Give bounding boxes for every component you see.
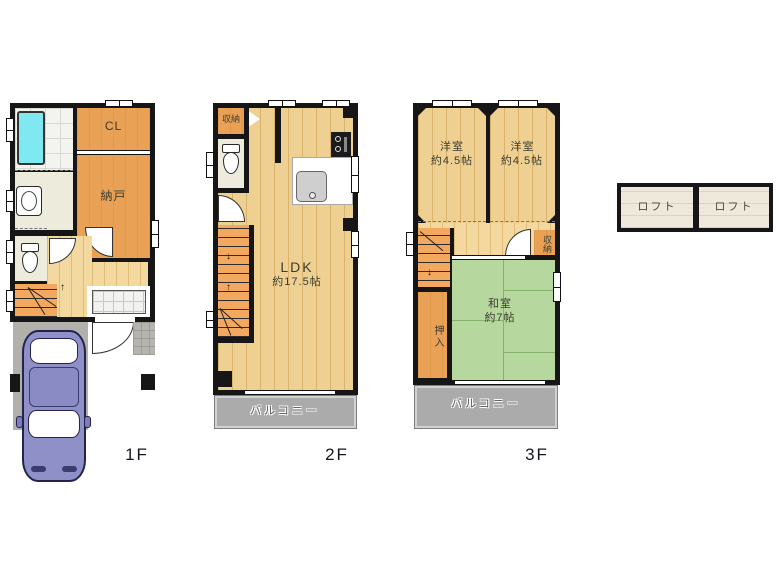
sink-faucet xyxy=(309,192,316,199)
f2-kitchen-sink xyxy=(296,171,327,202)
f3-oshiire-room xyxy=(418,292,447,378)
f1-hall-floor xyxy=(47,236,92,317)
f1-toilet-stairs-wall xyxy=(15,281,57,285)
f2-balcony-sliding-door xyxy=(245,390,335,395)
f1-window-top xyxy=(105,100,133,107)
f2-window-left-stairs xyxy=(206,311,214,328)
stove-burner-2 xyxy=(335,146,341,152)
f1-nando-room xyxy=(77,155,150,258)
f2-toilet-bottom-wall xyxy=(218,188,249,193)
f2-stairs xyxy=(218,225,249,337)
car-windshield xyxy=(28,410,80,438)
f1-hall-door-arc xyxy=(49,238,76,264)
f1-window-toilet xyxy=(6,240,14,264)
f2-kitchen-stove xyxy=(331,132,351,157)
f3-balcony xyxy=(414,385,558,429)
f2-stairs-bottom-wall xyxy=(218,337,254,343)
f3-hall-washitsu-wall xyxy=(525,255,555,260)
tatami-line-h1 xyxy=(452,320,503,321)
f2-shuno-door-mark xyxy=(247,110,260,128)
f3-yoshitsu2-floor xyxy=(490,108,555,223)
floor-1-label: 1F xyxy=(107,445,167,465)
f1-driveway xyxy=(13,322,88,430)
f2-kitchen-counter xyxy=(292,157,353,205)
f3-room1-notch-tl xyxy=(418,108,426,116)
f2-balcony-label: バルコニー xyxy=(250,405,320,418)
f2-interior-wall-stub xyxy=(275,108,281,163)
f2-balcony xyxy=(214,395,357,429)
f2-stairs-up-arrow-icon: ↑ xyxy=(226,283,231,293)
f1-window-right xyxy=(151,220,159,248)
toilet-tank xyxy=(222,144,240,153)
washbasin-bowl xyxy=(21,191,37,211)
f1-toilet xyxy=(21,243,39,274)
f2-window-top-2 xyxy=(322,100,350,107)
f2-window-top-1 xyxy=(268,100,296,107)
f3-hallway-floor xyxy=(418,223,555,258)
f3-oshiire-label: 押入 xyxy=(422,315,443,359)
f3-oshiire-right-wall xyxy=(447,292,452,378)
car xyxy=(22,330,86,482)
f2-ldk-label: LDK xyxy=(267,259,327,275)
f1-stairs-up-arrow-icon: ↑ xyxy=(60,283,65,293)
f1-stairs-winder-line2 xyxy=(28,287,46,315)
f1-washroom-top-divider xyxy=(15,170,73,171)
f2-shuno-bottom-wall xyxy=(218,134,249,139)
f2-toilet-room xyxy=(218,139,244,188)
f3-washitsu-size-label: 約7帖 xyxy=(461,312,539,325)
f2-stairs-right-wall xyxy=(249,225,254,343)
floor-plan-canvas: ↑ CL 納戸 xyxy=(0,0,780,585)
f3-stairs-down-arrow-icon: ↓ xyxy=(427,268,432,278)
toilet-bowl xyxy=(22,251,38,273)
f1-nando-bottom-wall xyxy=(77,258,150,262)
f1-bathtub xyxy=(17,111,45,165)
f1-pillar-left xyxy=(10,374,20,392)
loft-plan: ロフト ロフト xyxy=(617,183,773,232)
f3-shuno-room xyxy=(534,230,555,257)
f3-outer-walls xyxy=(413,103,560,385)
f1-entrance-door-arc xyxy=(92,322,134,354)
f2-hall-door-arc xyxy=(218,195,245,222)
f3-shuno-label: 収納 xyxy=(537,232,552,256)
f2-window-right-1 xyxy=(351,156,359,193)
f2-stairs-down-arrow-icon: ↓ xyxy=(226,252,231,262)
f1-cl-room xyxy=(77,108,150,152)
f2-shuno-room xyxy=(218,108,244,134)
f1-bathroom-floor xyxy=(15,108,73,170)
floor-1-plan: ↑ CL 納戸 xyxy=(0,0,780,585)
f3-washitsu-sliding-door xyxy=(452,255,525,260)
f3-stairs xyxy=(418,228,450,290)
car-rear-window xyxy=(30,338,78,364)
f3-room2-closet-line xyxy=(490,221,555,222)
f1-porch-border xyxy=(87,286,150,317)
f1-nando-door-arc xyxy=(85,227,113,257)
f2-notch-mid-right xyxy=(343,218,355,231)
f3-washitsu-label: 和室 xyxy=(465,298,535,311)
f1-entrance-hall-floor xyxy=(92,262,148,288)
f2-outer-walls xyxy=(213,103,358,395)
f1-cl-label: CL xyxy=(77,120,150,134)
f1-porch-tile xyxy=(92,290,146,314)
f2-toilet-right-wall xyxy=(244,108,249,188)
f3-oshiire-top-wall xyxy=(418,287,452,292)
f3-washitsu-floor xyxy=(452,260,555,380)
tatami-line-h3 xyxy=(503,352,555,353)
f1-wall-stub xyxy=(15,230,47,236)
f3-room1-notch-tr xyxy=(478,108,486,116)
f3-balcony-sliding-door xyxy=(455,380,545,385)
f2-window-right-2 xyxy=(351,231,359,258)
f2-notch-bottom-left xyxy=(218,371,232,387)
f3-balcony-label: バルコニー xyxy=(450,398,522,411)
floor-2-plan: ↓ ↑ 収納 LDK 約17.5帖 バルコニー xyxy=(0,0,780,585)
tatami-line-v xyxy=(503,260,504,380)
toilet-bowl xyxy=(223,152,239,174)
f3-yoshitsu2-label: 洋室 xyxy=(490,141,555,154)
f1-entrance-opening xyxy=(95,317,135,322)
f1-window-stairs xyxy=(6,290,14,312)
f3-window-top-2 xyxy=(498,100,538,107)
f2-toilet xyxy=(222,144,240,175)
stove-grill xyxy=(344,137,347,152)
f3-yoshitsu1-floor xyxy=(418,108,486,223)
f1-pillar-right xyxy=(141,374,155,390)
toilet-tank xyxy=(21,243,39,252)
car-headlight-right xyxy=(62,466,77,472)
f3-yoshitsu1-label: 洋室 xyxy=(418,141,486,154)
f1-nando-label: 納戸 xyxy=(77,190,150,204)
f1-outer-walls xyxy=(10,103,155,322)
f3-room2-notch-br xyxy=(547,215,555,223)
f3-stairs-winder-line xyxy=(420,231,444,251)
f3-yoshitsu2-size-label: 約4.5帖 xyxy=(484,155,560,168)
f3-room1-closet-line xyxy=(418,221,486,222)
f3-room2-notch-tr xyxy=(547,108,555,116)
f2-ldk-floor xyxy=(218,108,353,390)
f2-window-left-toilet xyxy=(206,152,214,178)
f1-washroom-bottom-divider xyxy=(15,228,47,229)
f3-room1-notch-bl xyxy=(418,215,426,223)
f1-entrance-approach-tile xyxy=(133,322,155,355)
car-mirror-right xyxy=(84,416,91,428)
f2-stairs-winder-line1 xyxy=(220,308,243,329)
stove-burner-1 xyxy=(335,136,341,142)
f2-shuno-label: 収納 xyxy=(218,114,244,124)
f1-window-washroom xyxy=(6,190,14,212)
f3-window-top-1 xyxy=(432,100,472,107)
car-body xyxy=(22,330,86,482)
floor-3-plan: ↓ 洋室 約4.5帖 洋室 約4.5帖 和室 約7帖 押入 収納 バルコニー xyxy=(0,0,780,585)
f3-stairs-right-wall xyxy=(450,228,454,292)
f1-washbasin xyxy=(16,186,42,216)
loft-left-label: ロフト xyxy=(621,201,693,214)
f1-window-bath xyxy=(6,118,14,142)
f1-toilet-room xyxy=(15,236,47,281)
car-mirror-left xyxy=(16,416,23,428)
f1-washroom-floor xyxy=(15,172,73,230)
f3-window-right xyxy=(553,272,561,302)
f3-shuno-door-arc xyxy=(505,229,531,256)
car-roof xyxy=(29,367,79,407)
f3-yoshitsu1-size-label: 約4.5帖 xyxy=(414,155,490,168)
f2-notch-top-right xyxy=(343,108,355,118)
f3-room2-notch-tl xyxy=(490,108,498,116)
f1-stairs-winder-line1 xyxy=(28,287,57,307)
f1-cl-sliding-door xyxy=(77,150,150,155)
loft-right-label: ロフト xyxy=(699,201,769,214)
tatami-line-h2 xyxy=(503,290,555,291)
f3-window-left xyxy=(406,232,414,256)
car-headlight-left xyxy=(31,466,46,472)
floor-3-label: 3F xyxy=(507,445,567,465)
f1-stairs xyxy=(15,284,57,317)
f2-stairs-winder-line2 xyxy=(220,308,232,335)
f2-ldk-size-label: 約17.5帖 xyxy=(257,276,337,289)
floor-2-label: 2F xyxy=(307,445,367,465)
